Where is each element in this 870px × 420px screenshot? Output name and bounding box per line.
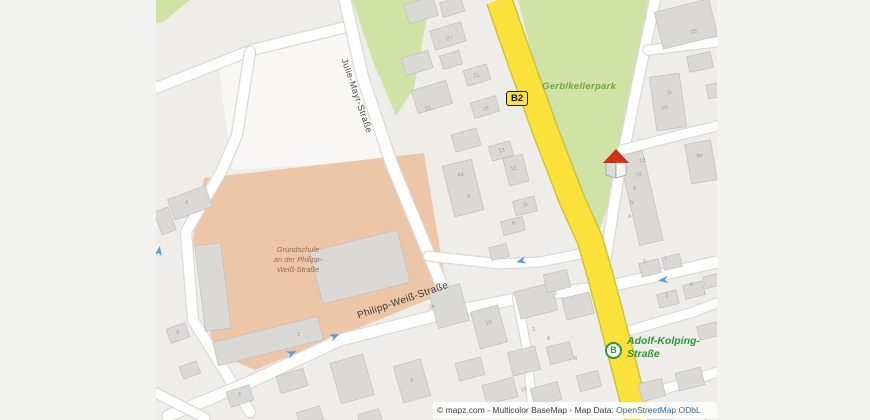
building xyxy=(683,281,706,299)
building xyxy=(439,50,462,69)
house-number: 2 xyxy=(642,259,647,266)
building xyxy=(657,290,680,308)
green-corner-nw xyxy=(156,0,190,24)
building xyxy=(471,305,508,349)
bus-stop-icon: B xyxy=(605,342,622,359)
building xyxy=(330,354,374,404)
building xyxy=(455,357,485,381)
building xyxy=(508,346,541,376)
house-number: 9 xyxy=(573,356,578,363)
building xyxy=(576,371,601,392)
building xyxy=(442,159,484,217)
house-number: 8 xyxy=(546,336,551,343)
building xyxy=(638,378,666,401)
oneway-arrow-icon xyxy=(156,245,164,256)
map-vector-layer: 272110184a413121191511108a121086421361b1… xyxy=(156,0,717,420)
building xyxy=(297,406,324,420)
building xyxy=(482,377,518,405)
attribution-text: © mapz.com - Multicolor BaseMap - Map Da… xyxy=(437,405,616,415)
house-number: 4 xyxy=(627,214,632,221)
building xyxy=(687,52,714,73)
building xyxy=(451,128,481,152)
house-number: 3 xyxy=(531,327,536,334)
map-attribution: © mapz.com - Multicolor BaseMap - Map Da… xyxy=(433,402,717,419)
building xyxy=(439,0,464,17)
building xyxy=(706,81,717,99)
house-marker-icon[interactable] xyxy=(601,147,631,181)
building xyxy=(546,341,574,364)
building xyxy=(411,80,452,113)
building xyxy=(703,273,717,289)
map-screenshot: 272110184a413121191511108a121086421361b1… xyxy=(0,0,870,420)
building xyxy=(179,361,200,379)
building xyxy=(649,73,686,131)
building xyxy=(404,0,439,24)
building xyxy=(358,409,383,420)
building xyxy=(697,322,717,340)
map-viewport[interactable]: 272110184a413121191511108a121086421361b1… xyxy=(156,0,717,420)
building xyxy=(685,140,717,184)
attribution-osm-link[interactable]: OpenStreetMap ODbL xyxy=(616,405,701,415)
building xyxy=(675,367,705,391)
route-badge-b2: B2 xyxy=(506,91,528,106)
